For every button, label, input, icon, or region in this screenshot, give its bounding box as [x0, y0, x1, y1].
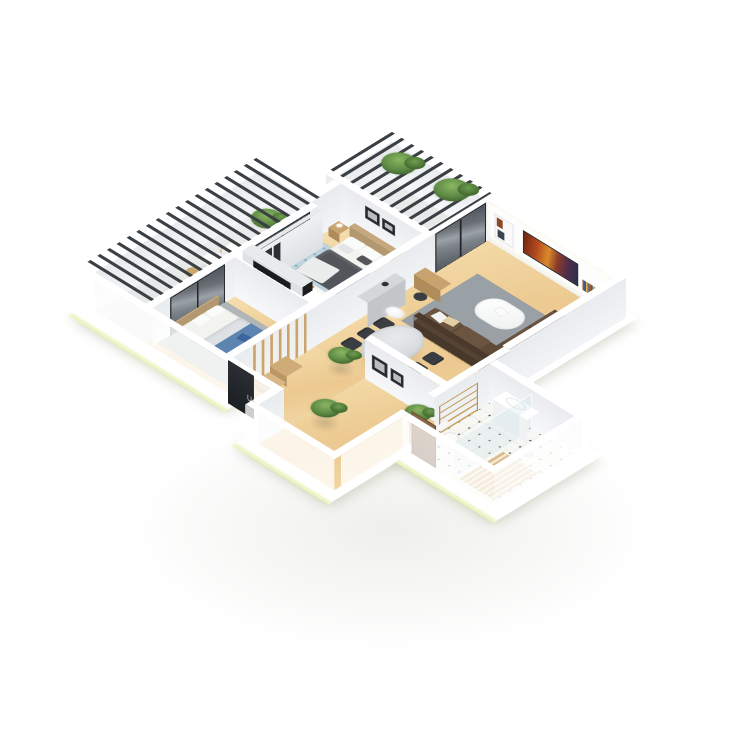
wall-art — [382, 218, 395, 236]
floorplan-canvas — [0, 0, 756, 756]
wall-entry-south — [245, 441, 341, 500]
framed-picture — [372, 354, 387, 378]
wall-corridor-east — [334, 449, 409, 495]
wall-bathroom-south — [402, 454, 500, 515]
framed-picture — [391, 368, 404, 388]
wall-art — [365, 205, 379, 226]
